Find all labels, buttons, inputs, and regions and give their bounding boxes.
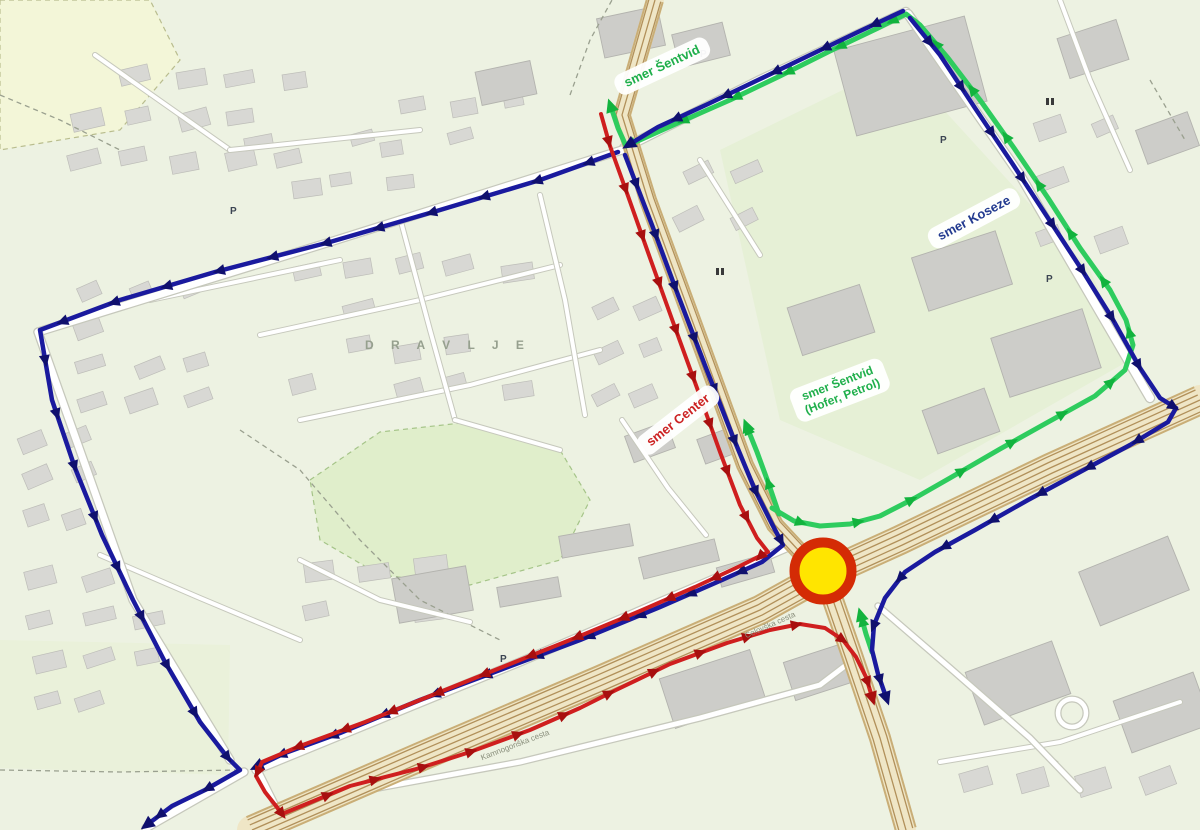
poi-icon — [1046, 98, 1049, 105]
parking-icon: P — [1046, 274, 1053, 285]
parking-icon: P — [230, 206, 237, 217]
detour-map: PPPPP D R A V L J E Kamnogoriška cesta C… — [0, 0, 1200, 830]
poi-icon — [716, 268, 719, 275]
parking-icon: P — [500, 654, 507, 665]
parking-icon: P — [940, 135, 947, 146]
map-canvas: PPPPP — [0, 0, 1200, 830]
area-label-dravlje: D R A V L J E — [365, 338, 531, 352]
roundabout-marker — [795, 543, 852, 600]
